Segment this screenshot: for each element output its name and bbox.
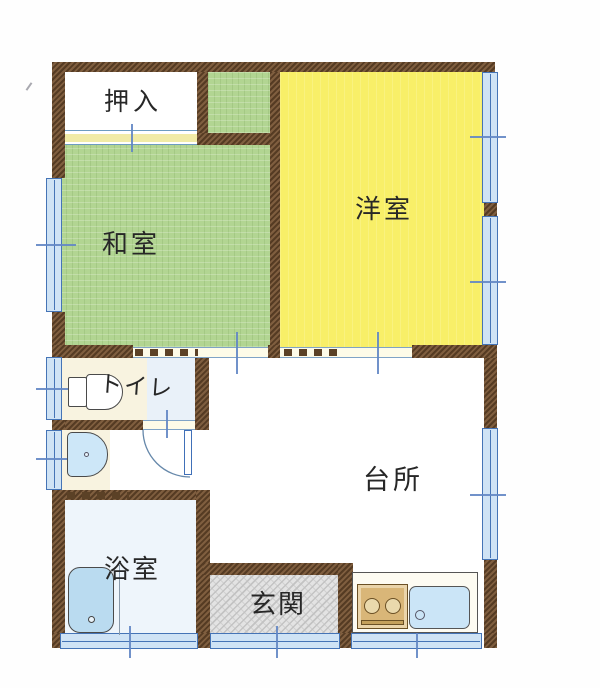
sink-fixture <box>409 586 470 629</box>
closet-label: 押入 <box>104 89 162 114</box>
wall-closet-right <box>197 72 208 133</box>
tick-window-right-3 <box>470 494 506 496</box>
western-room-sliding-door <box>284 349 344 356</box>
tick-entrance-door <box>276 626 278 658</box>
wall-right-pier <box>484 203 497 216</box>
kitchen-label: 台所 <box>363 467 423 494</box>
tick-japanese-track <box>236 332 238 374</box>
stove-burner-right <box>385 598 401 614</box>
bathtub-drain <box>88 616 95 623</box>
wall-western-room-bottom <box>412 345 497 358</box>
sink-drain <box>415 610 425 620</box>
toilet-tank-fixture <box>68 377 87 407</box>
japanese-room-sliding-door <box>135 349 198 356</box>
wall-left-lower <box>52 490 65 648</box>
wall-center <box>270 72 280 347</box>
tick-window-right-2 <box>470 281 506 283</box>
wall-bottom-corner-right <box>484 633 497 648</box>
stove-burner-left <box>364 598 380 614</box>
japanese-room-label: 和室 <box>102 232 160 258</box>
western-room-label: 洋室 <box>355 197 413 223</box>
bathroom-vent-window <box>67 492 129 499</box>
scan-artifact <box>26 82 33 91</box>
tick-window-right-1 <box>470 136 506 138</box>
wall-mid-pillar <box>268 345 280 358</box>
tick-western-track <box>377 332 379 374</box>
wall-left-pier <box>52 420 65 430</box>
wall-toilet-right <box>195 358 209 430</box>
entrance-label: 玄関 <box>250 592 306 618</box>
japanese-room-floor <box>60 145 270 347</box>
wall-left-upper <box>52 62 65 178</box>
bathroom-label: 浴室 <box>104 557 160 583</box>
tick-window-left-1 <box>36 244 76 246</box>
toilet-label: トイレ <box>98 373 174 401</box>
swing-door-arc <box>135 425 195 483</box>
alcove-floor <box>208 72 270 133</box>
entrance-door <box>210 633 340 649</box>
wall-japanese-room-bottom <box>52 345 133 358</box>
wall-top <box>52 62 495 72</box>
tick-closet-doors <box>131 124 133 152</box>
washbasin-drain <box>84 452 89 457</box>
tick-window-bottom-1 <box>129 626 131 658</box>
window-left-washroom <box>46 430 62 490</box>
wall-alcove-bottom <box>197 133 280 145</box>
wall-toilet-bottom <box>65 420 143 430</box>
floor-plan: 押入 和室 洋室 トイレ 台所 浴室 玄関 <box>0 0 600 688</box>
stove-grill <box>361 620 404 625</box>
wall-entrance-top <box>203 563 353 575</box>
